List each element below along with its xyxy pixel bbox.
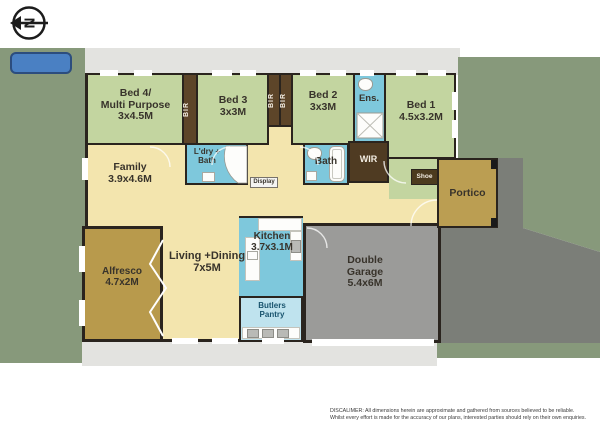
window (262, 338, 284, 344)
window (79, 246, 85, 272)
floorplan-page: N Display Shoe (0, 0, 600, 430)
sink-icon (247, 251, 258, 260)
yard-bottom-right (437, 343, 600, 358)
oven-icon (291, 240, 301, 253)
window (300, 70, 316, 76)
room-bed4 (85, 73, 184, 145)
room-bed2 (291, 73, 355, 145)
window (82, 158, 88, 180)
display-cabinet: Display (250, 177, 278, 188)
disclaimer-line2: Whilst every effort is made for the accu… (330, 415, 596, 422)
kitchen-bench (258, 218, 302, 231)
window (212, 70, 232, 76)
washer-icon (202, 172, 215, 182)
window (240, 70, 256, 76)
bir3-label: BIR (280, 78, 292, 122)
svg-text:N: N (21, 18, 38, 29)
disclaimer-text: DISCALIMER: All dimensions herein are ap… (330, 408, 596, 422)
shoe-cabinet: Shoe (411, 169, 438, 185)
window (134, 70, 152, 76)
room-bed3 (196, 73, 269, 145)
room-wir (348, 141, 389, 183)
appliance-icon (277, 329, 289, 338)
room-double-garage (303, 223, 441, 343)
disclaimer-line1: DISCALIMER: All dimensions herein are ap… (330, 408, 596, 415)
toilet-icon (307, 147, 322, 160)
window (452, 92, 458, 110)
window (330, 70, 346, 76)
appliance-icon (262, 329, 274, 338)
room-portico (437, 158, 498, 228)
toilet-icon (358, 78, 373, 91)
room-laundry-bath (185, 143, 248, 185)
bathtub-icon (329, 146, 345, 182)
yard-left (0, 48, 85, 363)
shoe-label: Shoe (417, 173, 433, 180)
window (360, 70, 374, 76)
window (396, 70, 416, 76)
room-alfresco (82, 226, 163, 342)
window (452, 120, 458, 138)
window (79, 300, 85, 326)
room-bed1 (384, 73, 456, 159)
north-compass-icon: N (6, 2, 50, 46)
bir1-label: BIR (183, 78, 197, 140)
bir2-label: BIR (268, 78, 280, 122)
garage-door-opening (312, 339, 434, 346)
window (212, 338, 238, 344)
appliance-icon (247, 329, 259, 338)
window (172, 338, 198, 344)
vanity-icon (306, 171, 317, 181)
display-label: Display (253, 179, 274, 185)
window (100, 70, 118, 76)
water-tank (10, 52, 72, 74)
window (428, 70, 446, 76)
